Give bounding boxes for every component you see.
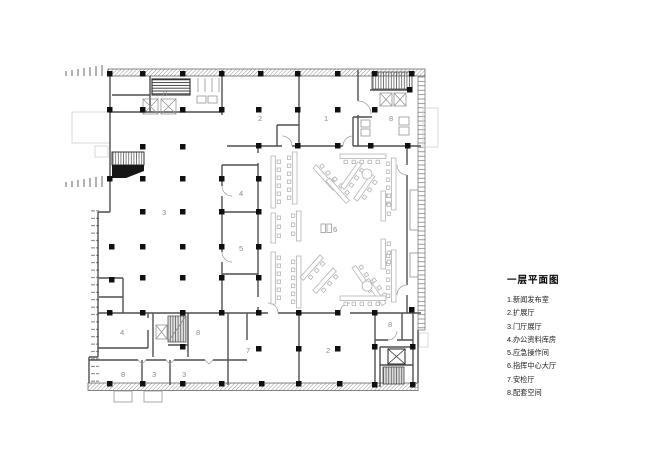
stair-core-bottom-right <box>383 367 404 384</box>
legend-item-7: 7.安检厅 <box>507 373 637 386</box>
room-label-4-mid: 4 <box>239 189 243 198</box>
stair-core-bottom-middle <box>168 316 186 342</box>
stair-room3 <box>112 152 144 178</box>
room-label-4-bottom: 4 <box>120 328 124 337</box>
legend-item-6: 6.指挥中心大厅 <box>507 359 637 372</box>
legend-title: 一层平面图 <box>507 272 637 286</box>
room-number-labels: 8 2 1 8 3 4 5 6 4 8 7 2 8 8 3 3 <box>120 89 393 379</box>
legend-item-4: 4.办公资料库房 <box>507 333 637 346</box>
walls <box>89 70 421 387</box>
legend-item-3: 3.门厅展厅 <box>507 320 637 333</box>
room-label-8-strip: 8 <box>121 370 125 379</box>
legend-item-2: 2.扩展厅 <box>507 306 637 319</box>
room-label-6: 6 <box>333 225 337 234</box>
legend: 一层平面图 1.新闻发布室 2.扩展厅 3.门厅展厅 4.办公资料库房 5.应急… <box>507 272 637 399</box>
exterior-site-marks <box>66 65 438 402</box>
room-label-7: 7 <box>246 346 250 355</box>
room-label-8-mid: 8 <box>196 328 200 337</box>
legend-item-8: 8.配套空间 <box>507 386 637 399</box>
room-label-2-bottom: 2 <box>326 346 330 355</box>
stair-core-top-right <box>372 72 412 89</box>
room-label-5: 5 <box>239 244 243 253</box>
legend-item-5: 5.应急操作间 <box>507 346 637 359</box>
room-label-8-top-left: 8 <box>163 89 167 98</box>
room-label-2-top: 2 <box>258 114 262 123</box>
legend-item-1: 1.新闻发布室 <box>507 293 637 306</box>
room-label-3-strip-b: 3 <box>182 370 186 379</box>
room-label-1: 1 <box>324 114 328 123</box>
floor-plan-page: 8 2 1 8 3 4 5 6 4 8 7 2 8 8 3 3 一层平面图 1.… <box>0 0 650 459</box>
escalator-core-top-left <box>152 79 190 95</box>
room-label-3: 3 <box>162 208 166 217</box>
room-label-8-bottom-right: 8 <box>388 320 392 329</box>
room-label-3-strip-a: 3 <box>152 370 156 379</box>
room-label-8-top-right: 8 <box>389 114 393 123</box>
